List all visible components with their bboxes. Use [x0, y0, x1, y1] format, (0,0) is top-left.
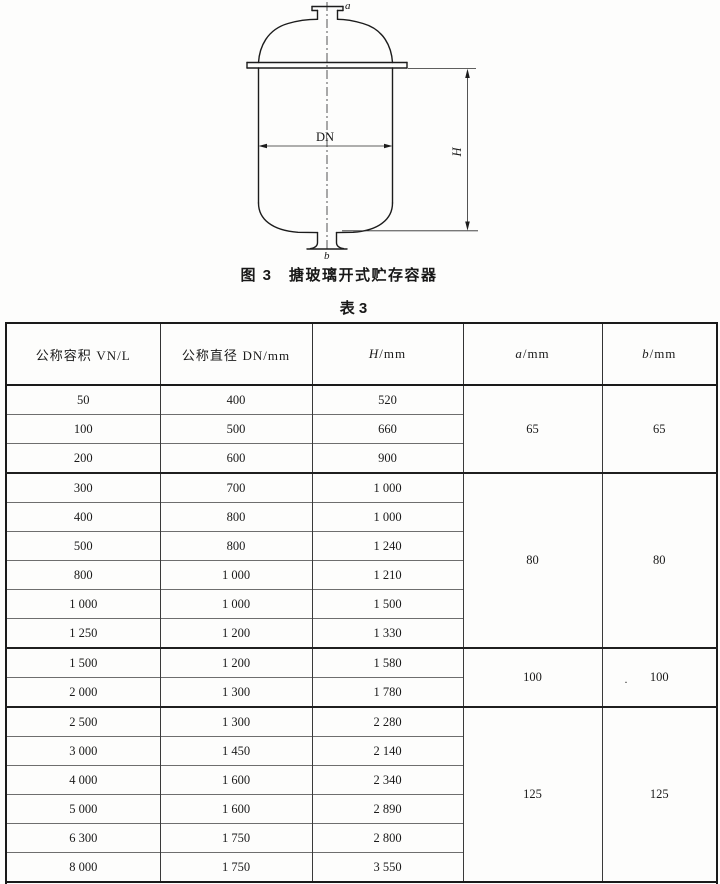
vessel-bottom [259, 203, 318, 233]
table-cell: 800 [6, 561, 160, 590]
table-cell: 1 000 [312, 473, 463, 503]
a-diameter-cell: 100 [463, 648, 602, 707]
b-diameter-cell: 80 [602, 473, 717, 648]
column-header: a/mm [463, 323, 602, 385]
table-cell: 1 210 [312, 561, 463, 590]
table-cell: 1 450 [160, 737, 312, 766]
table-cell: 2 000 [6, 678, 160, 708]
document-page: a b DN [0, 0, 720, 884]
table-cell: 2 500 [6, 707, 160, 737]
table-cell: 200 [6, 444, 160, 474]
text-segment: /mm [650, 346, 677, 361]
a-diameter-cell: 80 [463, 473, 602, 648]
top-nozzle-label: a [345, 0, 351, 12]
text-segment: a [515, 346, 523, 361]
h-dimension-label: H [450, 147, 464, 158]
table-cell: 1 500 [312, 590, 463, 619]
table-cell: 2 340 [312, 766, 463, 795]
dn-dimension [259, 144, 393, 149]
table-cell: 800 [160, 503, 312, 532]
spec-table-head: 公称容积 VN/L公称直径 DN/mmH/mma/mmb/mm [6, 323, 717, 385]
table-cell: 1 250 [6, 619, 160, 649]
table-row: 1 5001 2001 580100100. [6, 648, 717, 678]
table-cell: 660 [312, 415, 463, 444]
b-diameter-cell: 125 [602, 707, 717, 882]
table-cell: 1 600 [160, 766, 312, 795]
spec-table-body: 5040052065651005006602006009003007001 00… [6, 385, 717, 884]
table-cell: 1 300 [160, 678, 312, 708]
table-cell: 500 [6, 532, 160, 561]
table-cell: 1 780 [312, 678, 463, 708]
table-cell: 300 [6, 473, 160, 503]
a-diameter-cell: 65 [463, 385, 602, 473]
table-cell: 1 000 [160, 590, 312, 619]
spec-table: 公称容积 VN/L公称直径 DN/mmH/mma/mmb/mm 50400520… [5, 322, 718, 884]
table-cell: 1 580 [312, 648, 463, 678]
table-row: 3007001 0008080 [6, 473, 717, 503]
text-segment: /mm [379, 346, 406, 361]
vessel-drawing: a b DN [0, 0, 720, 262]
a-diameter-cell: 125 [463, 707, 602, 882]
column-header: 公称容积 VN/L [6, 323, 160, 385]
table-cell: 520 [312, 385, 463, 415]
table-cell: 900 [312, 444, 463, 474]
table-cell: 400 [6, 503, 160, 532]
table-cell: 5 000 [6, 795, 160, 824]
table-cell: 3 550 [312, 853, 463, 883]
table-cell: 600 [160, 444, 312, 474]
table-cell: 1 750 [160, 824, 312, 853]
table-cell: 1 330 [312, 619, 463, 649]
table-cell: 6 300 [6, 824, 160, 853]
top-nozzle [312, 7, 343, 20]
table-cell: 1 600 [160, 795, 312, 824]
table-cell: 8 000 [6, 853, 160, 883]
table-cell: 2 890 [312, 795, 463, 824]
table-cell: 2 800 [312, 824, 463, 853]
table-cell: 400 [160, 385, 312, 415]
b-diameter-cell: 100. [602, 648, 717, 707]
table-cell: 1 000 [312, 503, 463, 532]
table-cell: 2 280 [312, 707, 463, 737]
scan-artifact-dot: . [625, 674, 628, 684]
table-cell: 1 240 [312, 532, 463, 561]
text-segment: DN/mm [243, 348, 291, 363]
table-row: 504005206565 [6, 385, 717, 415]
table-cell: 50 [6, 385, 160, 415]
vessel-dome [259, 19, 318, 62]
table-cell: 100 [6, 415, 160, 444]
table-caption: 表 3 [0, 297, 707, 318]
table-cell: 1 000 [6, 590, 160, 619]
table-cell: 1 750 [160, 853, 312, 883]
table-cell: 500 [160, 415, 312, 444]
table-cell: 1 200 [160, 648, 312, 678]
table-cell: 2 140 [312, 737, 463, 766]
column-header: H/mm [312, 323, 463, 385]
table-row: 2 5001 3002 280125125 [6, 707, 717, 737]
table-cell: 3 000 [6, 737, 160, 766]
text-segment: 公称容积 [36, 348, 97, 363]
b-diameter-cell: 65 [602, 385, 717, 473]
table-cell: 4 000 [6, 766, 160, 795]
dn-dimension-label: DN [316, 130, 334, 144]
bottom-nozzle-label: b [324, 250, 330, 262]
table-cell: 700 [160, 473, 312, 503]
text-segment: H [369, 346, 379, 361]
table-cell: 1 200 [160, 619, 312, 649]
table-cell: 1 300 [160, 707, 312, 737]
table-cell: 1 500 [6, 648, 160, 678]
figure-caption: 图 3 搪玻璃开式贮存容器 [0, 264, 678, 285]
text-segment: 公称直径 [182, 348, 243, 363]
text-segment: b [642, 346, 650, 361]
table-cell: 1 000 [160, 561, 312, 590]
text-segment: /mm [523, 346, 550, 361]
text-segment: VN/L [96, 348, 130, 363]
column-header: b/mm [602, 323, 717, 385]
column-header: 公称直径 DN/mm [160, 323, 312, 385]
table-cell: 800 [160, 532, 312, 561]
